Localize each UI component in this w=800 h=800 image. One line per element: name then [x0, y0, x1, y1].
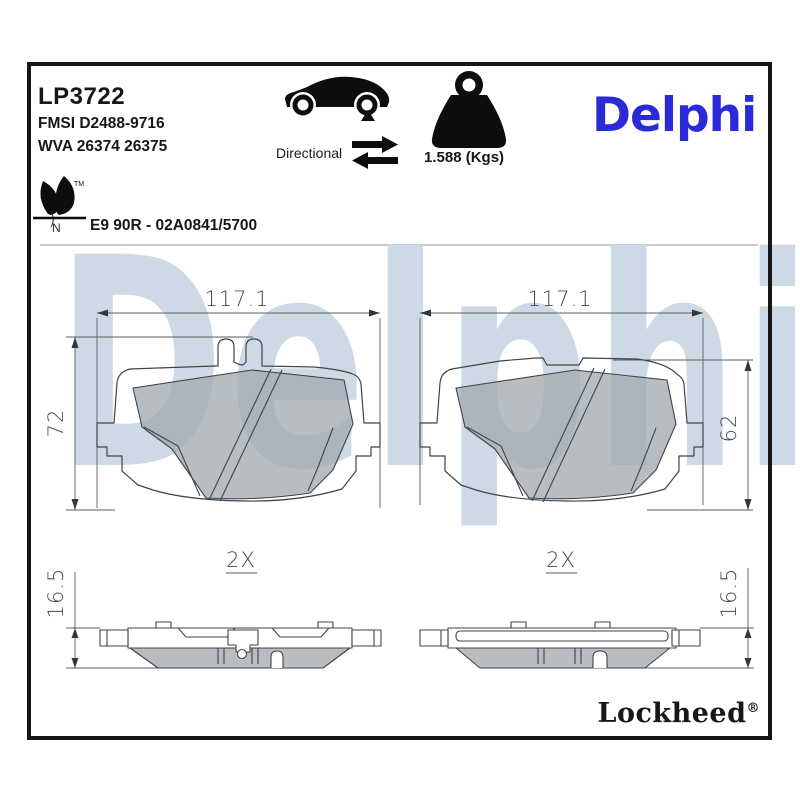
- right-profile-quantity-label: 2X: [546, 548, 576, 572]
- lockheed-wordmark: Lockheed: [597, 698, 746, 729]
- leaf-n-mark: N: [52, 221, 61, 235]
- wva-reference: WVA 26374 26375: [38, 138, 167, 156]
- lockheed-logo: Lockheed®: [597, 698, 760, 729]
- right-pad-front-drawing: 117.1 62: [420, 287, 753, 510]
- right-pad-height-dimension: 62: [717, 414, 741, 443]
- directional-arrows-icon: [352, 136, 398, 169]
- car-icon: [285, 77, 389, 121]
- weight-value: 1.588 (Kgs): [424, 149, 504, 166]
- part-number: LP3722: [38, 83, 125, 111]
- fmsi-reference: FMSI D2488-9716: [38, 115, 165, 133]
- left-pad-front-drawing: 117.1 72: [44, 287, 380, 510]
- registered-trademark-symbol: ®: [747, 701, 761, 716]
- ece-approval-code: E9 90R - 02A0841/5700: [90, 217, 257, 235]
- left-profile-rivet-hole: [238, 650, 247, 659]
- right-pad-profile-drawing: 2X 16.5: [420, 548, 754, 668]
- right-pad-friction-material: [456, 370, 676, 499]
- directional-label: Directional: [276, 145, 342, 161]
- datasheet-page: { "header": { "part_number": "LP3722", "…: [0, 0, 800, 800]
- right-profile-thickness-dimension: 16.5: [717, 568, 741, 619]
- left-pad-friction-material: [133, 370, 353, 499]
- left-profile-quantity-label: 2X: [226, 548, 256, 572]
- left-pad-profile-drawing: 2X 16.5: [44, 548, 381, 668]
- left-profile-thickness-dimension: 16.5: [44, 568, 68, 619]
- eco-leaf-icon: TM N: [33, 176, 86, 235]
- weight-icon: [432, 71, 506, 148]
- left-pad-width-dimension: 117.1: [204, 287, 269, 311]
- right-profile-friction-material: [456, 648, 670, 668]
- right-pad-width-dimension: 117.1: [527, 287, 592, 311]
- left-pad-height-dimension: 72: [44, 409, 68, 438]
- leaf-tm-mark: TM: [74, 181, 84, 188]
